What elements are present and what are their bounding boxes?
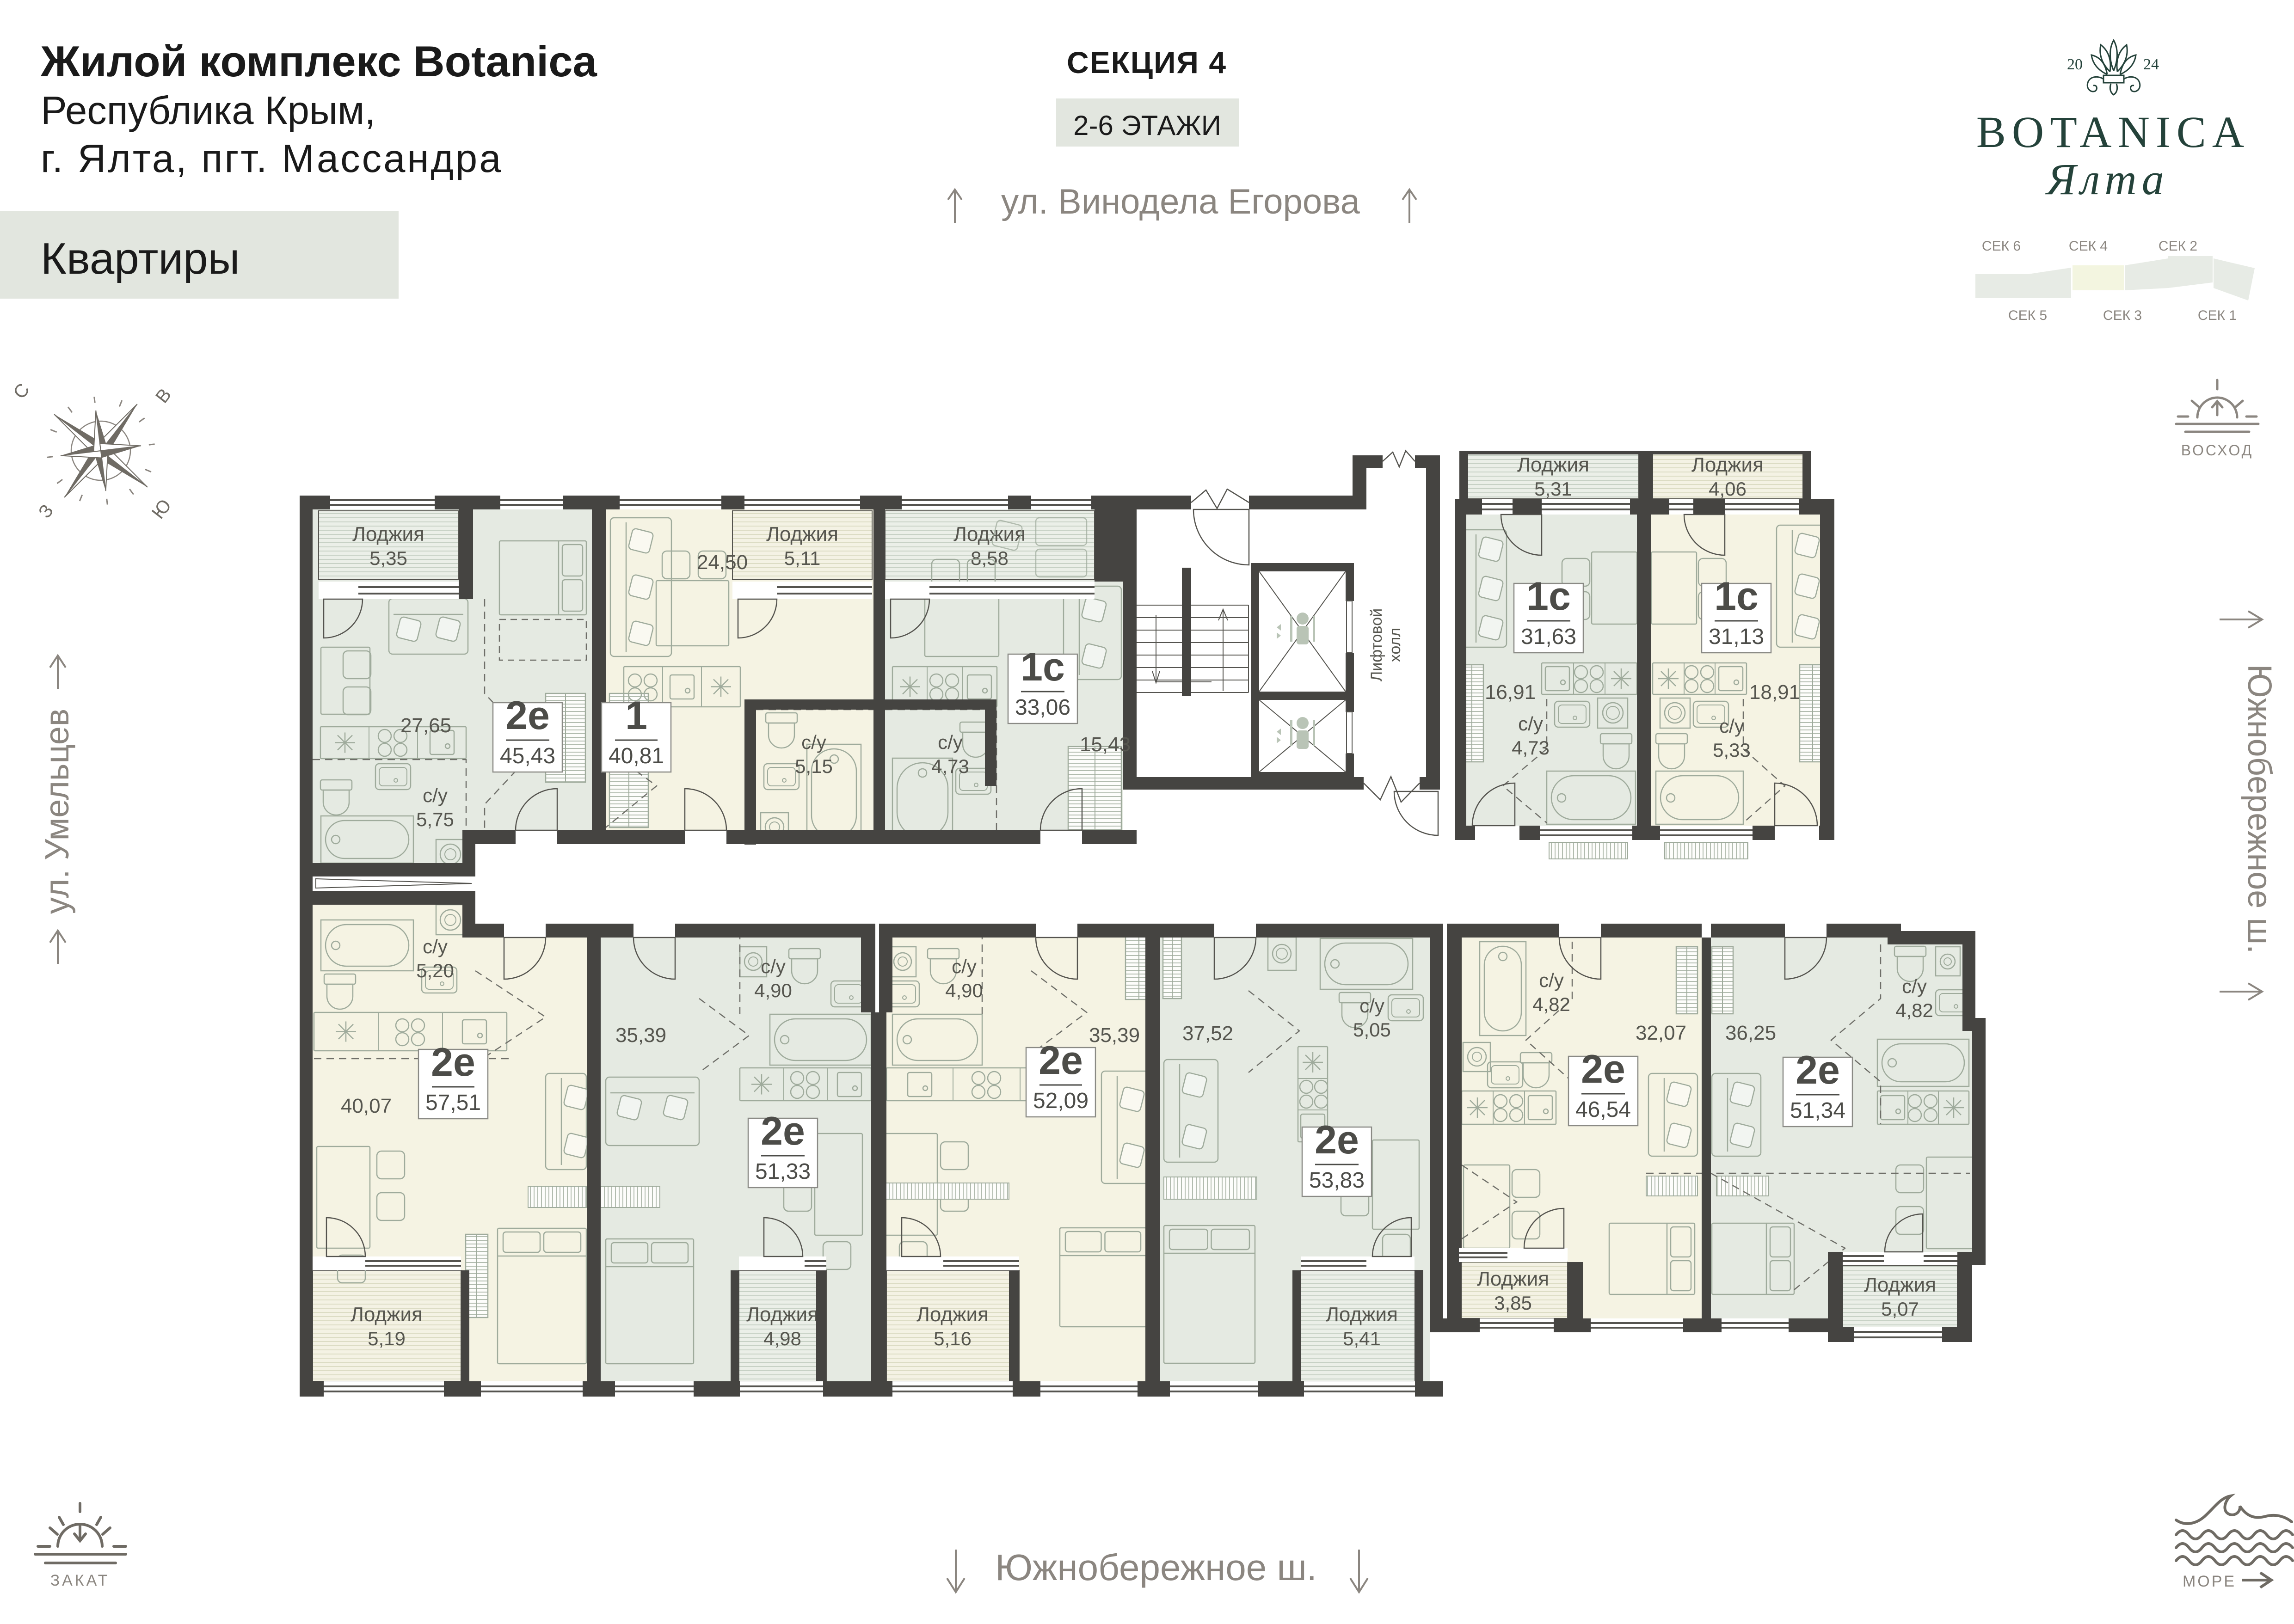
svg-text:Ялта: Ялта: [2045, 154, 2168, 204]
svg-text:Лифтовой: Лифтовой: [1368, 608, 1385, 681]
svg-text:Южнобережное ш.: Южнобережное ш.: [995, 1547, 1317, 1588]
svg-text:1с: 1с: [1714, 574, 1759, 619]
svg-text:2е: 2е: [761, 1109, 805, 1153]
svg-text:53,83: 53,83: [1309, 1168, 1365, 1193]
svg-text:с/у: с/у: [761, 956, 786, 977]
svg-text:57,51: 57,51: [425, 1091, 481, 1115]
svg-text:5,15: 5,15: [795, 755, 833, 777]
svg-text:1: 1: [625, 693, 647, 738]
svg-text:Лоджия: Лоджия: [1864, 1274, 1936, 1296]
svg-text:4,90: 4,90: [754, 980, 792, 1001]
svg-text:24: 24: [2143, 56, 2159, 73]
svg-text:2е: 2е: [1581, 1047, 1625, 1091]
svg-text:Лоджия: Лоджия: [352, 523, 424, 545]
svg-text:Лоджия: Лоджия: [953, 523, 1026, 545]
svg-text:5,05: 5,05: [1353, 1019, 1391, 1041]
svg-text:Жилой комплекс Botanica: Жилой комплекс Botanica: [40, 37, 597, 86]
svg-text:3,85: 3,85: [1494, 1292, 1532, 1314]
svg-text:40,81: 40,81: [609, 744, 664, 768]
svg-text:2е: 2е: [431, 1040, 475, 1085]
svg-text:с/у: с/у: [952, 956, 977, 977]
svg-text:51,33: 51,33: [755, 1159, 811, 1184]
svg-text:СЕК 1: СЕК 1: [2198, 308, 2237, 323]
svg-text:5,07: 5,07: [1881, 1298, 1919, 1320]
svg-text:5,41: 5,41: [1343, 1328, 1381, 1349]
svg-text:Республика Крым,: Республика Крым,: [41, 89, 375, 133]
svg-text:ул. Умельцев: ул. Умельцев: [39, 709, 76, 914]
svg-text:Лоджия: Лоджия: [1477, 1268, 1549, 1290]
svg-text:Лоджия: Лоджия: [1517, 453, 1589, 476]
svg-text:Южнобережное ш.: Южнобережное ш.: [2241, 664, 2278, 954]
svg-text:с/у: с/у: [1518, 713, 1543, 735]
svg-text:2е: 2е: [1315, 1118, 1359, 1162]
svg-text:5,19: 5,19: [368, 1328, 406, 1349]
svg-text:с/у: с/у: [1359, 995, 1384, 1017]
svg-text:5,35: 5,35: [369, 547, 407, 569]
svg-text:г. Ялта, пгт. Массандра: г. Ялта, пгт. Массандра: [41, 137, 503, 181]
svg-text:16,91: 16,91: [1485, 681, 1536, 704]
svg-text:СЕК 6: СЕК 6: [1982, 239, 2021, 254]
svg-text:2е: 2е: [1796, 1048, 1840, 1092]
svg-text:52,09: 52,09: [1033, 1089, 1089, 1113]
svg-text:4,98: 4,98: [763, 1328, 801, 1349]
svg-text:4,82: 4,82: [1532, 993, 1570, 1015]
svg-text:2е: 2е: [1039, 1038, 1083, 1083]
svg-text:с/у: с/у: [1719, 715, 1744, 737]
svg-text:с/у: с/у: [938, 731, 963, 753]
svg-text:20: 20: [2067, 56, 2083, 73]
svg-text:32,07: 32,07: [1636, 1022, 1686, 1044]
svg-text:МОРЕ: МОРЕ: [2183, 1573, 2236, 1590]
svg-text:СЕК 3: СЕК 3: [2103, 308, 2142, 323]
svg-text:с/у: с/у: [1902, 975, 1927, 997]
svg-text:37,52: 37,52: [1182, 1022, 1233, 1045]
svg-text:1с: 1с: [1021, 645, 1065, 689]
svg-text:46,54: 46,54: [1575, 1097, 1631, 1122]
svg-text:Лоджия: Лоджия: [1326, 1303, 1398, 1326]
svg-text:ул. Винодела Егорова: ул. Винодела Егорова: [1001, 182, 1360, 221]
svg-text:2-6 ЭТАЖИ: 2-6 ЭТАЖИ: [1073, 110, 1221, 141]
svg-text:BOTANICA: BOTANICA: [1976, 107, 2250, 157]
svg-text:Лоджия: Лоджия: [351, 1303, 423, 1326]
svg-text:24,50: 24,50: [697, 551, 748, 574]
svg-text:5,33: 5,33: [1713, 739, 1751, 761]
svg-text:4,82: 4,82: [1895, 999, 1933, 1021]
svg-text:4,90: 4,90: [945, 980, 983, 1001]
svg-text:15,43: 15,43: [1080, 733, 1131, 756]
svg-text:31,13: 31,13: [1709, 625, 1764, 649]
svg-text:СЕКЦИЯ 4: СЕКЦИЯ 4: [1067, 45, 1227, 80]
svg-text:ВОСХОД: ВОСХОД: [2181, 442, 2254, 459]
svg-text:5,16: 5,16: [934, 1328, 972, 1349]
svg-text:4,06: 4,06: [1709, 478, 1747, 500]
svg-text:36,25: 36,25: [1725, 1022, 1776, 1044]
svg-text:1с: 1с: [1526, 574, 1571, 619]
svg-text:4,73: 4,73: [1512, 737, 1550, 759]
svg-text:СЕК 2: СЕК 2: [2159, 239, 2197, 254]
svg-text:Лоджия: Лоджия: [746, 1303, 818, 1326]
svg-text:40,07: 40,07: [341, 1095, 392, 1117]
svg-text:51,34: 51,34: [1790, 1098, 1845, 1123]
svg-text:СЕК 5: СЕК 5: [2008, 308, 2047, 323]
svg-text:с/у: с/у: [1539, 969, 1564, 991]
svg-text:Лоджия: Лоджия: [916, 1303, 989, 1326]
svg-text:с/у: с/у: [423, 936, 448, 957]
svg-text:Квартиры: Квартиры: [41, 234, 240, 283]
svg-text:Лоджия: Лоджия: [1691, 453, 1764, 476]
svg-text:31,63: 31,63: [1521, 625, 1576, 649]
svg-text:СЕК 4: СЕК 4: [2069, 239, 2108, 254]
svg-text:холл: холл: [1386, 628, 1404, 662]
svg-text:4,73: 4,73: [931, 755, 969, 777]
svg-text:33,06: 33,06: [1015, 695, 1070, 720]
svg-text:5,20: 5,20: [416, 960, 454, 981]
svg-text:8,58: 8,58: [971, 547, 1009, 569]
svg-text:Лоджия: Лоджия: [766, 523, 838, 545]
svg-text:5,31: 5,31: [1534, 478, 1572, 500]
svg-text:5,75: 5,75: [416, 809, 454, 830]
svg-text:35,39: 35,39: [1089, 1024, 1140, 1047]
svg-text:35,39: 35,39: [615, 1024, 666, 1047]
svg-text:с/у: с/у: [423, 784, 448, 806]
svg-text:ЗАКАТ: ЗАКАТ: [50, 1572, 110, 1589]
svg-text:18,91: 18,91: [1749, 681, 1800, 704]
svg-text:2е: 2е: [505, 693, 550, 738]
svg-text:с/у: с/у: [801, 731, 826, 753]
svg-text:5,11: 5,11: [784, 547, 821, 569]
svg-text:45,43: 45,43: [500, 744, 555, 768]
svg-text:27,65: 27,65: [400, 714, 451, 737]
